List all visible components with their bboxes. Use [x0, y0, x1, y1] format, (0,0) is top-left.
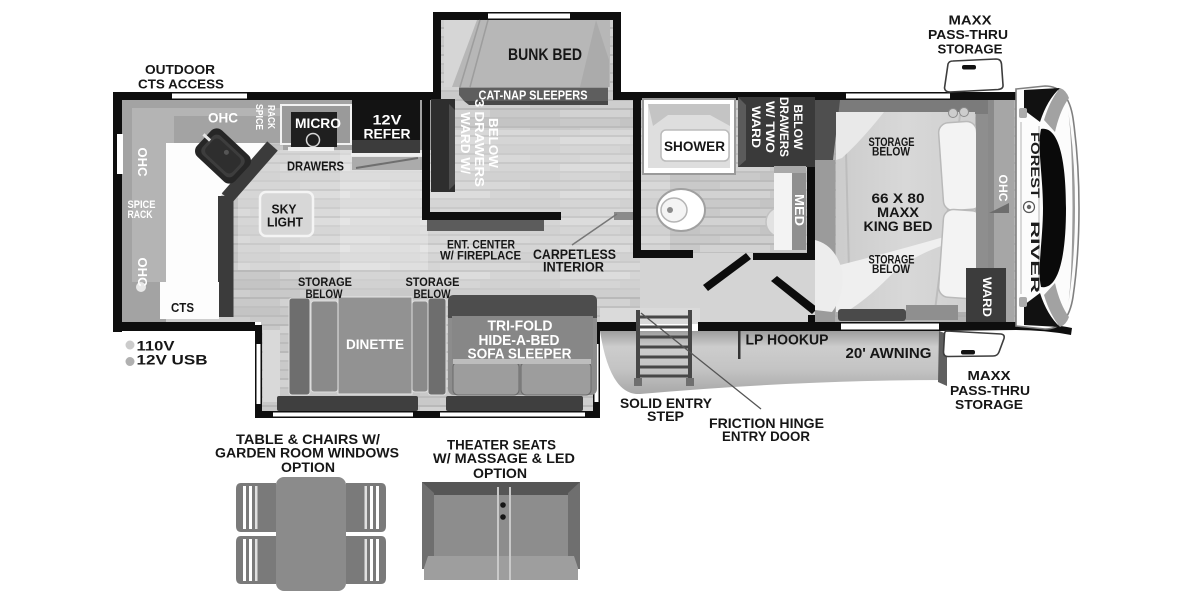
- svg-text:CTS: CTS: [171, 301, 194, 315]
- svg-text:ENTRY DOOR: ENTRY DOOR: [722, 428, 810, 444]
- svg-text:RACK: RACK: [265, 105, 277, 129]
- svg-text:BELOW: BELOW: [791, 105, 803, 150]
- svg-text:W/ FIREPLACE: W/ FIREPLACE: [440, 251, 521, 263]
- svg-text:CAT-NAP SLEEPERS: CAT-NAP SLEEPERS: [479, 88, 588, 103]
- svg-text:SPICE: SPICE: [253, 104, 265, 130]
- svg-text:OHC: OHC: [135, 258, 150, 288]
- svg-text:SKY: SKY: [272, 203, 298, 217]
- svg-text:STEP: STEP: [647, 408, 684, 424]
- svg-text:SOFA SLEEPER: SOFA SLEEPER: [468, 347, 572, 363]
- svg-text:DRAWERS: DRAWERS: [287, 159, 344, 174]
- svg-text:12V USB: 12V USB: [137, 352, 208, 368]
- svg-text:LP HOOKUP: LP HOOKUP: [746, 333, 829, 349]
- svg-text:MAXX: MAXX: [877, 205, 919, 220]
- svg-text:STORAGE: STORAGE: [955, 397, 1023, 412]
- svg-text:W/ TWO: W/ TWO: [763, 101, 775, 153]
- svg-text:STORAGE: STORAGE: [298, 277, 352, 289]
- svg-text:W/ MASSAGE & LED: W/ MASSAGE & LED: [433, 451, 575, 466]
- svg-text:CTS ACCESS: CTS ACCESS: [138, 77, 224, 92]
- svg-text:BELOW: BELOW: [306, 289, 343, 301]
- svg-text:MICRO: MICRO: [295, 116, 341, 131]
- svg-text:20' AWNING: 20' AWNING: [846, 346, 932, 362]
- svg-text:OHC: OHC: [135, 148, 150, 178]
- svg-text:BELOW: BELOW: [486, 118, 500, 168]
- svg-text:STORAGE: STORAGE: [406, 277, 460, 289]
- svg-text:66 X 80: 66 X 80: [872, 191, 925, 206]
- svg-text:MAXX: MAXX: [968, 368, 1011, 383]
- svg-text:GARDEN ROOM WINDOWS: GARDEN ROOM WINDOWS: [215, 446, 399, 461]
- svg-text:OPTION: OPTION: [473, 466, 527, 481]
- svg-text:SHOWER: SHOWER: [664, 139, 725, 154]
- svg-text:OHC: OHC: [208, 111, 238, 126]
- svg-text:FOREST: FOREST: [1028, 132, 1040, 198]
- svg-text:OUTDOOR: OUTDOOR: [145, 62, 216, 77]
- svg-text:DRAWERS: DRAWERS: [777, 97, 789, 157]
- svg-text:MED: MED: [792, 194, 806, 226]
- svg-text:WARD: WARD: [749, 106, 761, 148]
- svg-text:STORAGE: STORAGE: [938, 42, 1003, 57]
- svg-text:BELOW: BELOW: [872, 147, 910, 159]
- svg-text:OPTION: OPTION: [281, 460, 335, 475]
- svg-text:REFER: REFER: [364, 126, 411, 142]
- svg-text:MAXX: MAXX: [949, 13, 992, 28]
- svg-text:RACK: RACK: [128, 209, 153, 221]
- svg-text:3 DRAWERS: 3 DRAWERS: [472, 99, 486, 187]
- svg-text:PASS-THRU: PASS-THRU: [928, 27, 1008, 42]
- svg-text:OHC: OHC: [996, 175, 1010, 202]
- svg-text:DINETTE: DINETTE: [346, 336, 404, 352]
- svg-text:PASS-THRU: PASS-THRU: [950, 383, 1030, 398]
- svg-text:WARD: WARD: [980, 277, 992, 317]
- svg-text:BUNK BED: BUNK BED: [508, 45, 582, 64]
- svg-text:INTERIOR: INTERIOR: [543, 260, 604, 275]
- svg-text:BELOW: BELOW: [872, 264, 910, 276]
- svg-text:KING BED: KING BED: [864, 219, 933, 234]
- svg-text:RIVER: RIVER: [1028, 221, 1040, 294]
- svg-text:BELOW: BELOW: [414, 289, 451, 301]
- svg-text:WARD W/: WARD W/: [458, 112, 472, 175]
- svg-text:LIGHT: LIGHT: [267, 216, 303, 230]
